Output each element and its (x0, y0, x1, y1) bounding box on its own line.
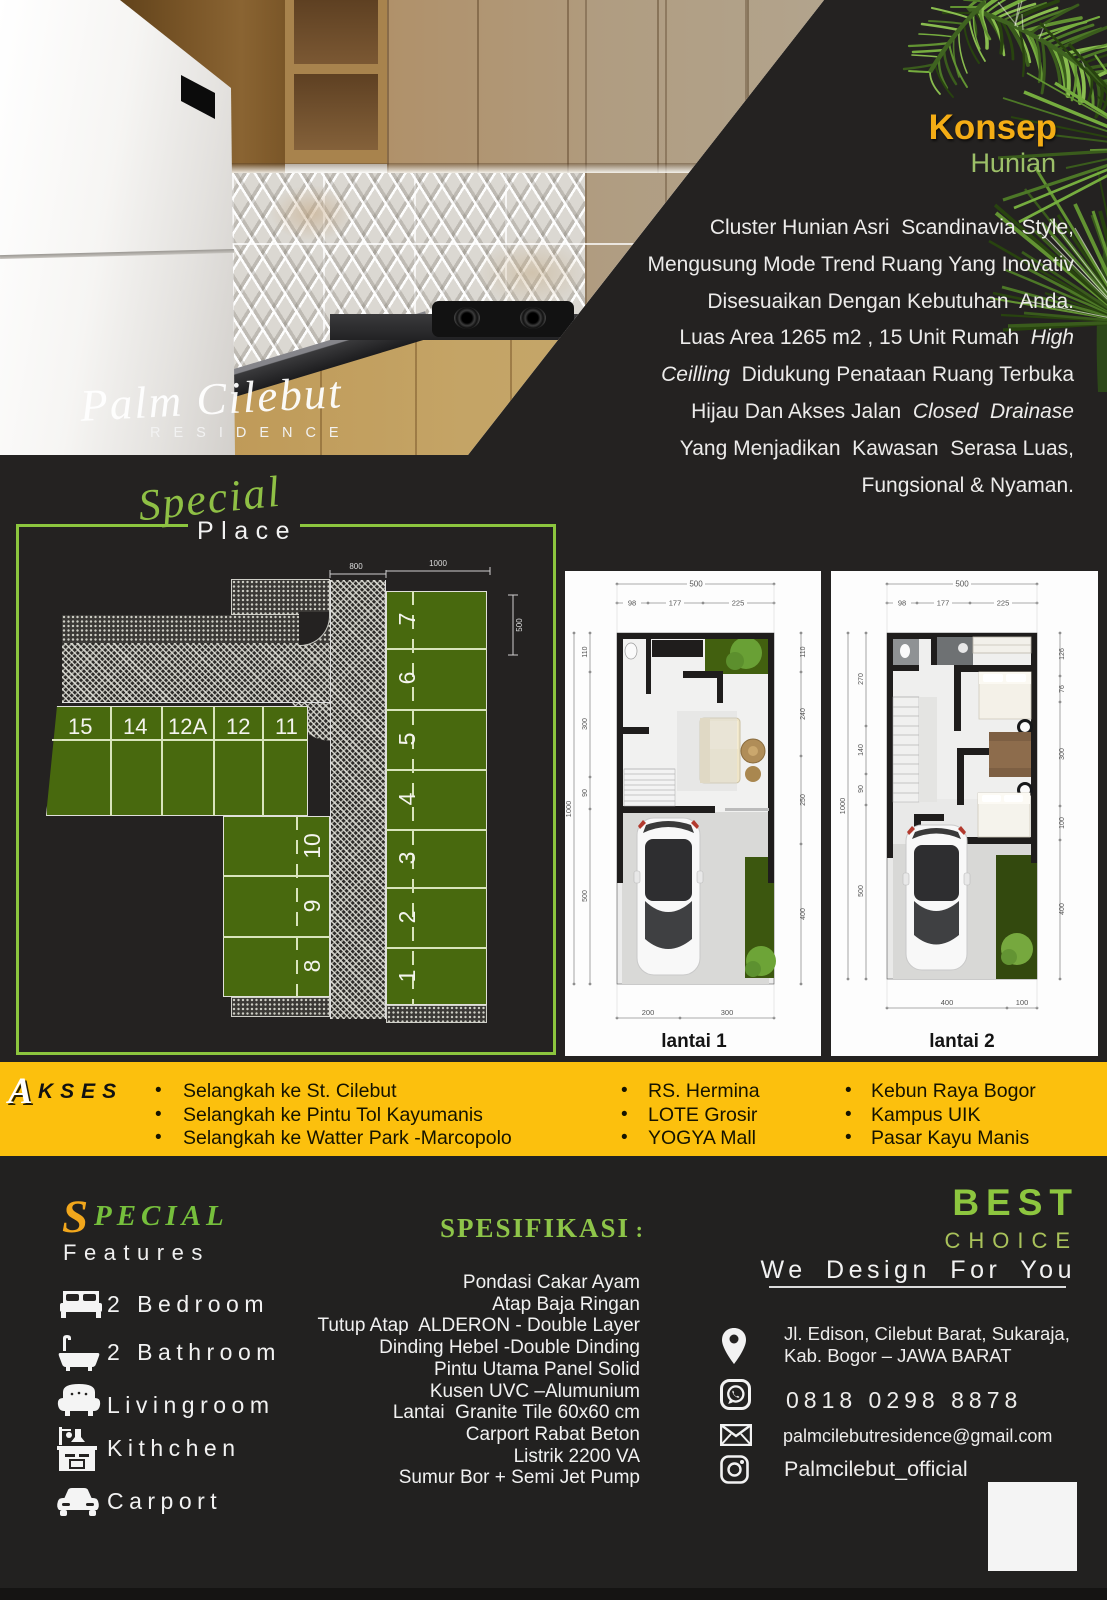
svg-text:300: 300 (582, 718, 589, 730)
svg-text:90: 90 (858, 785, 865, 793)
svg-text:110: 110 (582, 646, 589, 657)
svg-text:1000: 1000 (429, 559, 447, 568)
svg-text:177: 177 (937, 599, 950, 608)
svg-text:98: 98 (628, 599, 636, 608)
svg-text:1000: 1000 (565, 801, 573, 818)
svg-text:140: 140 (858, 744, 865, 756)
svg-text:1000: 1000 (838, 798, 847, 815)
svg-text:110: 110 (800, 646, 807, 657)
svg-text:300: 300 (1059, 748, 1066, 760)
svg-text:270: 270 (858, 673, 865, 685)
svg-text:225: 225 (997, 599, 1010, 608)
svg-text:200: 200 (642, 1008, 655, 1017)
svg-text:400: 400 (941, 998, 954, 1007)
svg-text:76: 76 (1059, 685, 1066, 693)
svg-text:100: 100 (1016, 998, 1029, 1007)
svg-text:500: 500 (582, 890, 589, 902)
svg-text:250: 250 (800, 794, 807, 806)
svg-text:177: 177 (669, 599, 682, 608)
svg-text:lantai 2: lantai 2 (929, 1031, 994, 1052)
svg-text:400: 400 (1059, 903, 1066, 915)
svg-text:lantai 1: lantai 1 (661, 1031, 727, 1052)
svg-text:100: 100 (1059, 817, 1066, 829)
svg-text:500: 500 (955, 580, 969, 589)
svg-text:300: 300 (721, 1008, 734, 1017)
svg-text:240: 240 (800, 708, 807, 720)
svg-text:90: 90 (582, 789, 589, 797)
svg-text:225: 225 (732, 599, 745, 608)
svg-text:400: 400 (800, 908, 807, 920)
svg-text:98: 98 (898, 599, 906, 608)
svg-text:800: 800 (349, 562, 363, 571)
svg-text:500: 500 (858, 885, 865, 897)
svg-text:500: 500 (515, 618, 524, 632)
svg-text:126: 126 (1059, 648, 1066, 660)
svg-text:500: 500 (689, 580, 703, 589)
